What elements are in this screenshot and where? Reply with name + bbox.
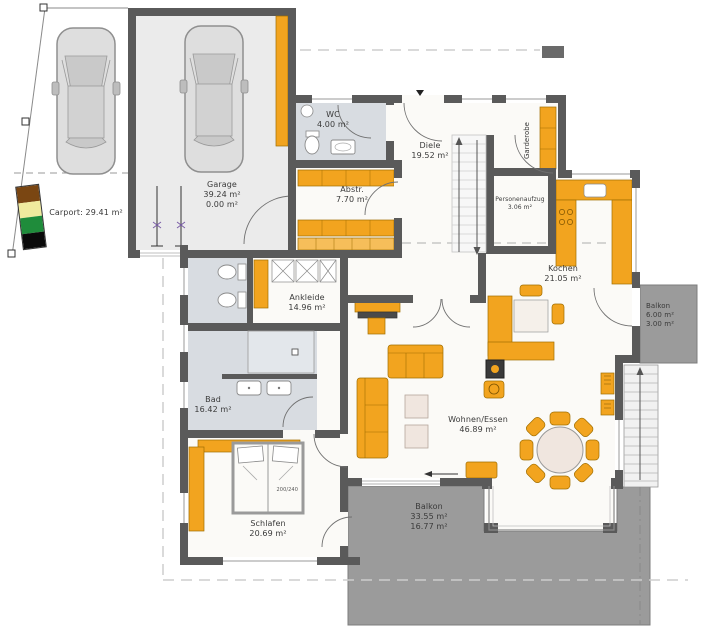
floor-plan-drawing [0,0,701,630]
room-label-wc: WC 4.00 m² [305,110,361,130]
room-label-balkon-sued: Balkon 33.55 m² 16.77 m² [396,502,462,532]
bedroom-wardrobe [189,447,204,531]
room-label-carport: Carport: 29.41 m² [34,208,138,218]
outdoor-stairs-symbol [624,365,658,487]
sofa [357,378,388,458]
bed-size-label: 200/240 [262,487,298,493]
chimney [542,46,564,58]
floor-plan-canvas: Carport: 29.41 m² Garage 39.24 m² 0.00 m… [0,0,701,630]
toilet-symbol [305,136,319,154]
wall [478,253,486,303]
floor-bay [486,486,615,531]
window-bench [466,462,497,478]
wall [348,295,413,303]
garage-car-symbol [180,26,248,172]
kitchen-sink [584,184,606,197]
wardrobe-symbol [272,260,336,282]
garage-cabinet [276,16,288,146]
bed-symbol [233,443,303,513]
room-label-wohnen-essen: Wohnen/Essen 46.89 m² [438,415,518,435]
toilet-symbol [218,265,236,279]
room-label-ankleide: Ankleide 14.96 m² [276,293,338,313]
shower-symbol [248,331,314,373]
room-label-diele: Diele 19.52 m² [400,141,460,161]
room-label-garage: Garage 39.24 m² 0.00 m² [176,180,268,210]
carport-car-symbol [52,28,120,174]
room-label-garderobe: Garderobe [523,106,531,176]
hall-wardrobe [540,107,556,169]
sofa [388,345,443,378]
room-label-bad: Bad 16.42 m² [184,395,242,415]
closet-wardrobe [254,260,268,308]
room-label-abstellraum: Abstr. 7.70 m² [324,185,380,205]
room-label-personenaufzug: Personenaufzug 3.06 m² [482,196,558,212]
dining-table-symbol [520,412,599,489]
legend-black [22,231,46,249]
room-label-schlafen: Schlafen 20.69 m² [236,519,300,539]
room-label-kochen: Kochen 21.05 m² [530,264,596,284]
wall-cabinet [601,373,614,415]
bidet-symbol [218,293,236,307]
room-label-balkon-ost: Balkon 6.00 m² 3.00 m² [646,302,696,329]
sink-symbol [331,140,355,154]
